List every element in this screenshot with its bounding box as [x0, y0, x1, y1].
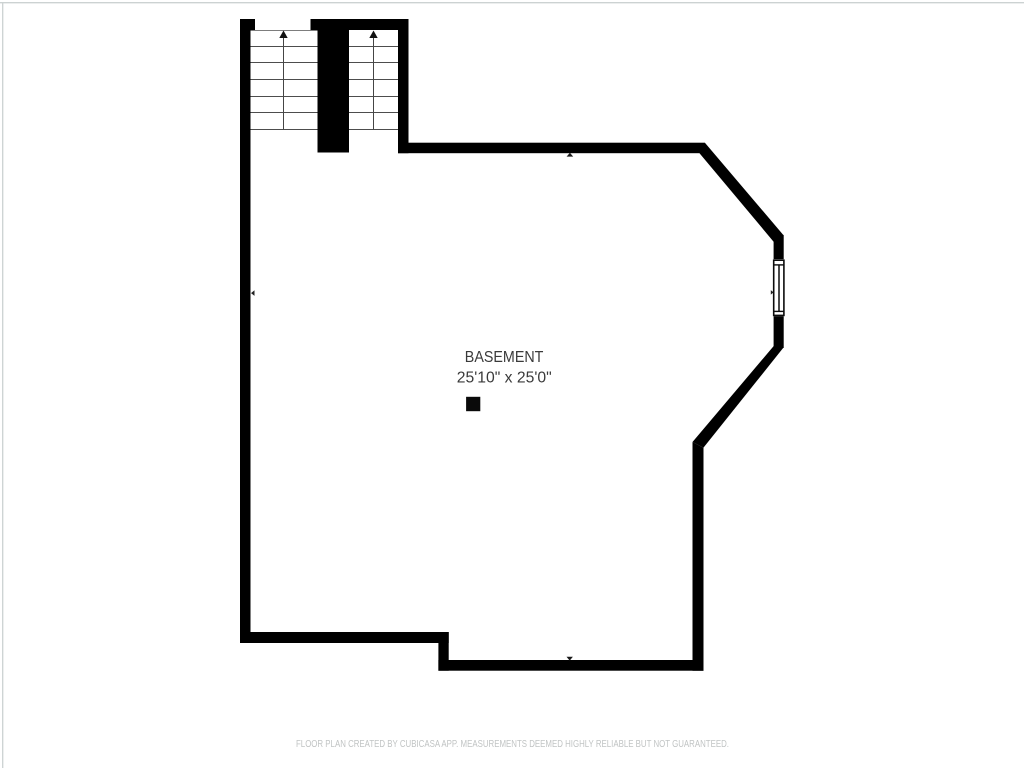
- svg-text:25'10" x 25'0": 25'10" x 25'0": [457, 370, 552, 387]
- svg-text:BASEMENT: BASEMENT: [465, 349, 544, 366]
- svg-text:FLOOR PLAN CREATED BY CUBICASA: FLOOR PLAN CREATED BY CUBICASA APP. MEAS…: [296, 739, 729, 750]
